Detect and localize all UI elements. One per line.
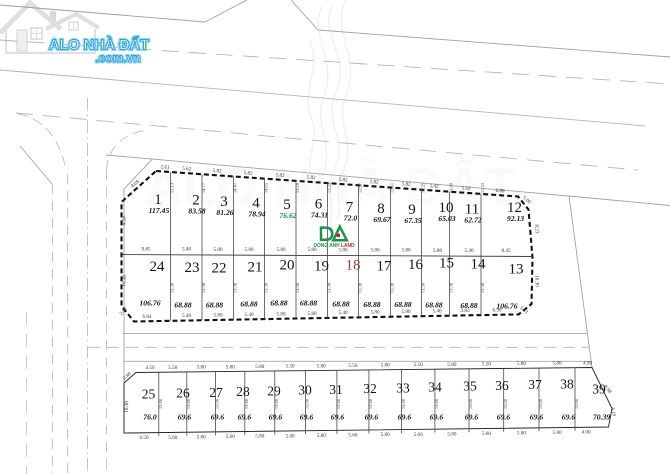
svg-text:68.88: 68.88 [363, 300, 380, 309]
svg-text:14: 14 [471, 257, 487, 273]
svg-text:5.80: 5.80 [197, 434, 206, 440]
svg-text:11.53: 11.53 [480, 182, 485, 193]
svg-text:5.80: 5.80 [401, 248, 410, 254]
svg-text:69.6: 69.6 [211, 413, 225, 422]
svg-text:26: 26 [176, 386, 190, 401]
svg-text:13.00: 13.00 [186, 398, 191, 409]
svg-text:92.13: 92.13 [507, 214, 524, 223]
svg-text:5.82: 5.82 [306, 175, 316, 182]
svg-text:27: 27 [209, 385, 223, 400]
svg-text:68.88: 68.88 [394, 300, 411, 309]
svg-text:13.38: 13.38 [327, 282, 332, 293]
svg-text:13.38: 13.38 [421, 282, 426, 293]
svg-text:13.00: 13.00 [574, 398, 579, 409]
svg-text:68.88: 68.88 [240, 300, 257, 309]
svg-text:69.67: 69.67 [373, 215, 391, 224]
svg-text:5.40: 5.40 [338, 310, 347, 316]
svg-text:15: 15 [439, 256, 454, 272]
svg-text:5.80: 5.80 [244, 247, 253, 253]
svg-text:69.6: 69.6 [430, 413, 444, 422]
svg-text:13.38: 13.38 [170, 282, 175, 293]
svg-text:68.88: 68.88 [300, 299, 317, 308]
svg-text:3.83: 3.83 [460, 308, 469, 314]
svg-text:13.38: 13.38 [390, 282, 395, 293]
svg-text:5.40: 5.40 [182, 247, 191, 253]
svg-text:5.82: 5.82 [212, 168, 222, 175]
svg-text:72.0: 72.0 [344, 214, 358, 223]
svg-text:78.94: 78.94 [248, 210, 265, 219]
svg-text:5.60: 5.60 [348, 433, 357, 439]
svg-text:11.89: 11.89 [449, 182, 454, 193]
svg-text:6.88: 6.88 [495, 188, 505, 195]
svg-text:67.35: 67.35 [404, 216, 421, 225]
svg-text:17: 17 [377, 259, 393, 275]
svg-text:5.82: 5.82 [369, 179, 379, 186]
svg-text:5.40: 5.40 [432, 309, 441, 315]
svg-text:13.38: 13.38 [358, 282, 363, 293]
svg-text:19: 19 [314, 259, 329, 275]
svg-text:13.00: 13.00 [368, 398, 373, 409]
svg-text:37: 37 [528, 377, 542, 392]
svg-text:5.80: 5.80 [517, 431, 526, 437]
svg-text:5.60: 5.60 [482, 431, 491, 437]
svg-text:6.84: 6.84 [142, 314, 151, 320]
svg-text:16: 16 [408, 257, 424, 273]
svg-text:5.82: 5.82 [401, 181, 411, 188]
svg-text:36: 36 [495, 378, 509, 393]
svg-text:4.00: 4.00 [581, 430, 590, 436]
svg-text:68.88: 68.88 [332, 300, 349, 309]
svg-text:69.6: 69.6 [530, 413, 544, 422]
svg-text:69.6: 69.6 [365, 413, 379, 422]
svg-text:68.88: 68.88 [206, 301, 223, 310]
svg-text:69.6: 69.6 [398, 413, 412, 422]
svg-text:13.33: 13.33 [327, 182, 332, 193]
svg-text:15.13: 15.13 [170, 182, 175, 193]
svg-text:65.03: 65.03 [438, 214, 455, 223]
svg-text:4.90: 4.90 [583, 360, 592, 366]
svg-text:81.26: 81.26 [216, 208, 233, 217]
svg-text:5.50: 5.50 [414, 362, 423, 368]
svg-text:14.41: 14.41 [233, 182, 238, 193]
svg-text:12.61: 12.61 [390, 182, 395, 193]
svg-text:5.82: 5.82 [275, 172, 285, 179]
svg-text:5.50: 5.50 [286, 364, 295, 370]
svg-text:13.00: 13.00 [244, 398, 249, 409]
svg-text:5.80: 5.80 [317, 433, 326, 439]
svg-text:29: 29 [267, 383, 281, 398]
svg-text:5.80: 5.80 [255, 364, 264, 370]
svg-text:8.45: 8.45 [501, 248, 510, 254]
svg-text:74.31: 74.31 [311, 211, 328, 220]
svg-text:30: 30 [298, 383, 312, 398]
svg-text:68.88: 68.88 [174, 301, 191, 310]
svg-text:5.80: 5.80 [213, 247, 222, 253]
svg-text:5.80: 5.80 [433, 248, 442, 254]
svg-text:69.6: 69.6 [465, 413, 479, 422]
svg-text:8.59: 8.59 [121, 216, 128, 226]
svg-text:10.30: 10.30 [124, 401, 131, 413]
svg-text:5.82: 5.82 [243, 170, 253, 177]
svg-text:13.38: 13.38 [233, 282, 238, 293]
svg-text:5.80: 5.80 [226, 364, 235, 370]
svg-text:25: 25 [142, 387, 156, 402]
svg-text:28: 28 [236, 384, 250, 399]
svg-text:5.80: 5.80 [276, 247, 285, 253]
svg-text:5.50: 5.50 [482, 362, 491, 368]
svg-text:32: 32 [363, 381, 377, 396]
svg-text:62.72: 62.72 [464, 216, 481, 225]
svg-text:12.97: 12.97 [358, 182, 363, 193]
svg-text:5.80: 5.80 [255, 434, 264, 440]
svg-text:13.38: 13.38 [264, 282, 269, 293]
svg-text:35: 35 [463, 379, 477, 394]
svg-text:38: 38 [560, 376, 574, 391]
svg-text:69.6: 69.6 [269, 413, 283, 422]
svg-text:9.85: 9.85 [141, 247, 150, 253]
svg-text:76.62: 76.62 [279, 211, 296, 220]
svg-text:69.6: 69.6 [178, 413, 192, 422]
svg-text:5.62: 5.62 [182, 166, 192, 173]
svg-text:13.38: 13.38 [201, 282, 206, 293]
svg-text:12.25: 12.25 [421, 182, 426, 193]
svg-text:13.38: 13.38 [449, 282, 454, 293]
svg-text:13.00: 13.00 [274, 398, 279, 409]
svg-text:5.80: 5.80 [401, 309, 410, 315]
svg-text:5.80: 5.80 [381, 432, 390, 438]
svg-text:13.00: 13.00 [215, 398, 220, 409]
svg-text:5.80: 5.80 [447, 362, 456, 368]
svg-text:5.80: 5.80 [552, 361, 561, 367]
svg-text:.com.vn: .com.vn [95, 51, 140, 65]
svg-text:5.80: 5.80 [447, 431, 456, 437]
svg-text:5.60: 5.60 [286, 433, 295, 439]
svg-text:106.76: 106.76 [139, 299, 160, 308]
svg-text:13.00: 13.00 [434, 398, 439, 409]
svg-text:33: 33 [396, 380, 410, 395]
svg-text:13.38: 13.38 [480, 282, 485, 293]
svg-text:13.00: 13.00 [468, 398, 473, 409]
svg-text:13.69: 13.69 [295, 182, 300, 193]
svg-text:5.50: 5.50 [168, 365, 177, 371]
svg-text:6.50: 6.50 [139, 435, 148, 441]
svg-text:10.30: 10.30 [533, 275, 539, 287]
svg-text:23: 23 [185, 260, 200, 276]
svg-text:13.00: 13.00 [503, 398, 508, 409]
svg-text:5.40: 5.40 [182, 313, 191, 319]
svg-text:13.00: 13.00 [401, 398, 406, 409]
svg-text:69.6: 69.6 [497, 413, 511, 422]
svg-text:5.80: 5.80 [307, 311, 316, 317]
svg-text:69.6: 69.6 [331, 413, 345, 422]
svg-text:24: 24 [150, 259, 166, 275]
svg-text:4.50: 4.50 [145, 365, 154, 371]
svg-text:5.80: 5.80 [213, 313, 222, 319]
svg-text:18: 18 [346, 258, 361, 274]
svg-text:5.82: 5.82 [338, 177, 348, 184]
svg-text:5.42: 5.42 [429, 183, 439, 190]
svg-text:8.23: 8.23 [533, 224, 539, 234]
svg-text:22: 22 [212, 261, 227, 277]
svg-text:21: 21 [248, 260, 263, 276]
svg-text:5.40: 5.40 [244, 312, 253, 318]
svg-text:2.61: 2.61 [160, 164, 170, 171]
svg-text:14.77: 14.77 [201, 182, 206, 193]
svg-text:83.58: 83.58 [188, 207, 205, 216]
svg-text:76.0: 76.0 [143, 413, 157, 422]
svg-text:69.6: 69.6 [238, 413, 252, 422]
svg-text:31: 31 [329, 382, 343, 397]
svg-text:5.50: 5.50 [348, 363, 357, 369]
svg-text:69.6: 69.6 [300, 413, 314, 422]
svg-text:5.80: 5.80 [370, 310, 379, 316]
svg-text:5.62: 5.62 [461, 185, 471, 192]
svg-text:14.05: 14.05 [264, 182, 269, 193]
svg-text:5.80: 5.80 [197, 365, 206, 371]
svg-text:5.80: 5.80 [381, 363, 390, 369]
svg-text:13.00: 13.00 [158, 398, 163, 409]
svg-text:DONG ANH LAND: DONG ANH LAND [314, 243, 355, 249]
svg-text:34: 34 [428, 380, 442, 395]
svg-text:10.36: 10.36 [121, 274, 128, 287]
svg-text:5.60: 5.60 [226, 434, 235, 440]
svg-text:13.00: 13.00 [538, 398, 543, 409]
svg-text:117.45: 117.45 [149, 206, 170, 215]
svg-text:13: 13 [509, 262, 524, 278]
svg-text:5.40: 5.40 [464, 248, 473, 254]
svg-text:5.60: 5.60 [414, 432, 423, 438]
svg-text:13.00: 13.00 [305, 398, 310, 409]
svg-text:5.60: 5.60 [168, 435, 177, 441]
svg-text:13.38: 13.38 [295, 282, 300, 293]
svg-text:5.80: 5.80 [276, 311, 285, 317]
svg-text:5.80: 5.80 [517, 361, 526, 367]
svg-text:68.88: 68.88 [270, 299, 287, 308]
svg-text:20: 20 [280, 258, 295, 274]
svg-text:5.80: 5.80 [317, 363, 326, 369]
svg-text:6.98: 6.98 [492, 307, 501, 313]
svg-text:70.39: 70.39 [593, 413, 610, 422]
svg-text:5.80: 5.80 [552, 430, 561, 436]
svg-text:69.6: 69.6 [562, 413, 576, 422]
svg-text:5.80: 5.80 [370, 248, 379, 254]
svg-text:13.00: 13.00 [336, 398, 341, 409]
